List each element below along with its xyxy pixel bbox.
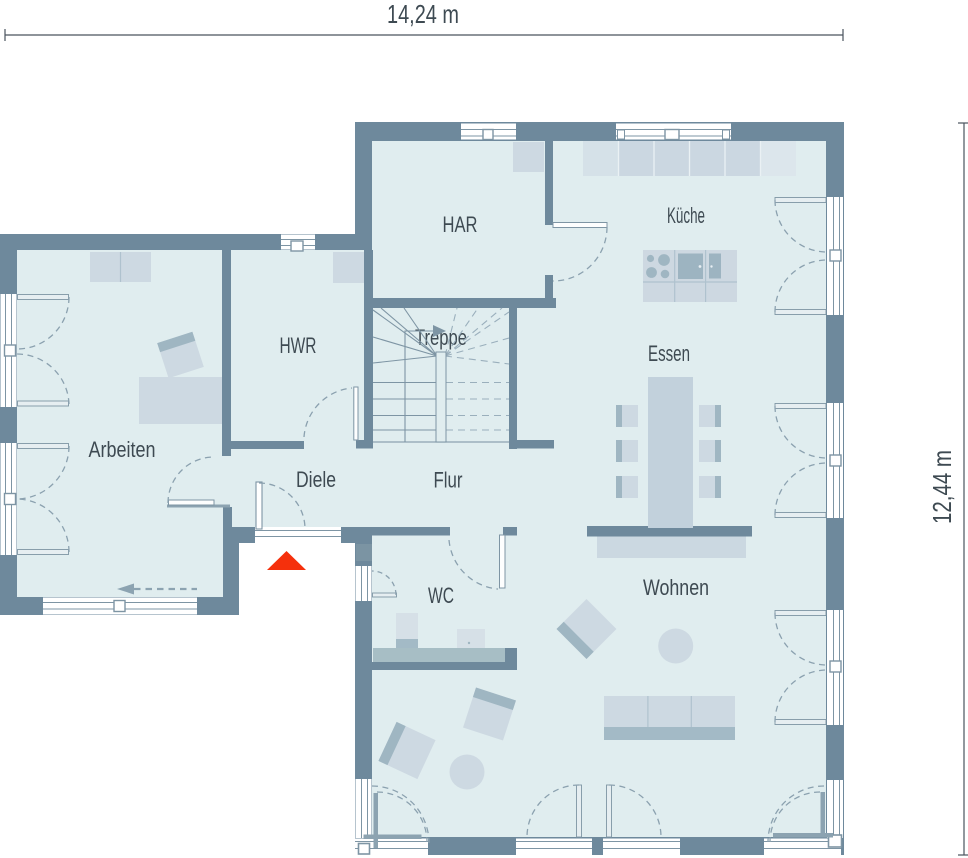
svg-text:HWR: HWR [280,333,317,358]
svg-text:HAR: HAR [443,212,478,237]
svg-text:Flur: Flur [434,468,463,493]
svg-text:14,24 m: 14,24 m [387,0,459,29]
svg-text:Essen: Essen [648,341,690,366]
svg-text:WC: WC [428,583,454,608]
svg-text:Wohnen: Wohnen [643,575,709,600]
svg-text:Küche: Küche [667,203,705,228]
svg-text:12,44 m: 12,44 m [927,450,957,524]
svg-text:Diele: Diele [296,467,336,492]
svg-text:Arbeiten: Arbeiten [89,437,156,462]
